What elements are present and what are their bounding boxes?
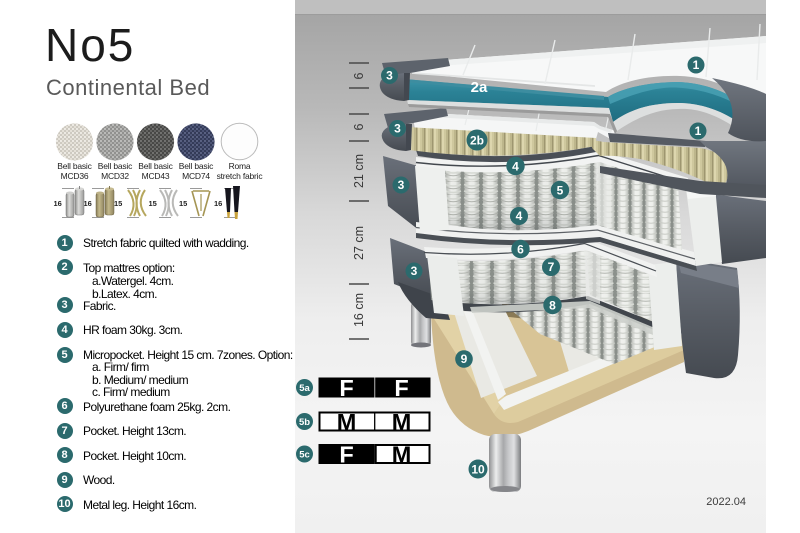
svg-text:4: 4 bbox=[516, 209, 523, 223]
svg-text:4: 4 bbox=[512, 159, 519, 173]
svg-text:5c: 5c bbox=[299, 450, 310, 461]
svg-text:3: 3 bbox=[411, 264, 418, 278]
svg-text:2b: 2b bbox=[470, 133, 484, 147]
svg-text:3: 3 bbox=[394, 122, 401, 136]
svg-text:2a: 2a bbox=[471, 79, 488, 96]
svg-text:10: 10 bbox=[471, 462, 485, 476]
svg-text:9: 9 bbox=[461, 352, 468, 366]
svg-text:16: 16 bbox=[214, 199, 222, 208]
svg-text:16 cm: 16 cm bbox=[352, 293, 366, 327]
svg-text:21 cm: 21 cm bbox=[352, 154, 366, 188]
svg-text:3: 3 bbox=[386, 69, 393, 83]
svg-text:15: 15 bbox=[114, 199, 122, 208]
svg-text:2022.04: 2022.04 bbox=[706, 496, 746, 508]
svg-text:M: M bbox=[392, 409, 412, 435]
svg-text:M: M bbox=[392, 442, 412, 468]
svg-text:F: F bbox=[394, 375, 408, 401]
svg-text:8: 8 bbox=[549, 298, 556, 312]
svg-text:F: F bbox=[339, 375, 353, 401]
svg-text:15: 15 bbox=[179, 199, 187, 208]
svg-text:16: 16 bbox=[84, 199, 92, 208]
svg-text:16: 16 bbox=[54, 199, 62, 208]
svg-text:M: M bbox=[337, 409, 357, 435]
svg-text:1: 1 bbox=[693, 58, 700, 72]
svg-text:6: 6 bbox=[352, 123, 366, 130]
svg-text:F: F bbox=[339, 442, 353, 468]
svg-text:5a: 5a bbox=[299, 383, 310, 394]
svg-text:6: 6 bbox=[352, 72, 366, 79]
svg-text:5b: 5b bbox=[299, 417, 310, 428]
svg-text:3: 3 bbox=[398, 178, 405, 192]
svg-text:7: 7 bbox=[548, 260, 555, 274]
svg-text:5: 5 bbox=[557, 183, 564, 197]
svg-text:27 cm: 27 cm bbox=[352, 226, 366, 260]
svg-text:1: 1 bbox=[695, 124, 702, 138]
svg-text:6: 6 bbox=[517, 242, 524, 256]
svg-text:15: 15 bbox=[149, 199, 157, 208]
